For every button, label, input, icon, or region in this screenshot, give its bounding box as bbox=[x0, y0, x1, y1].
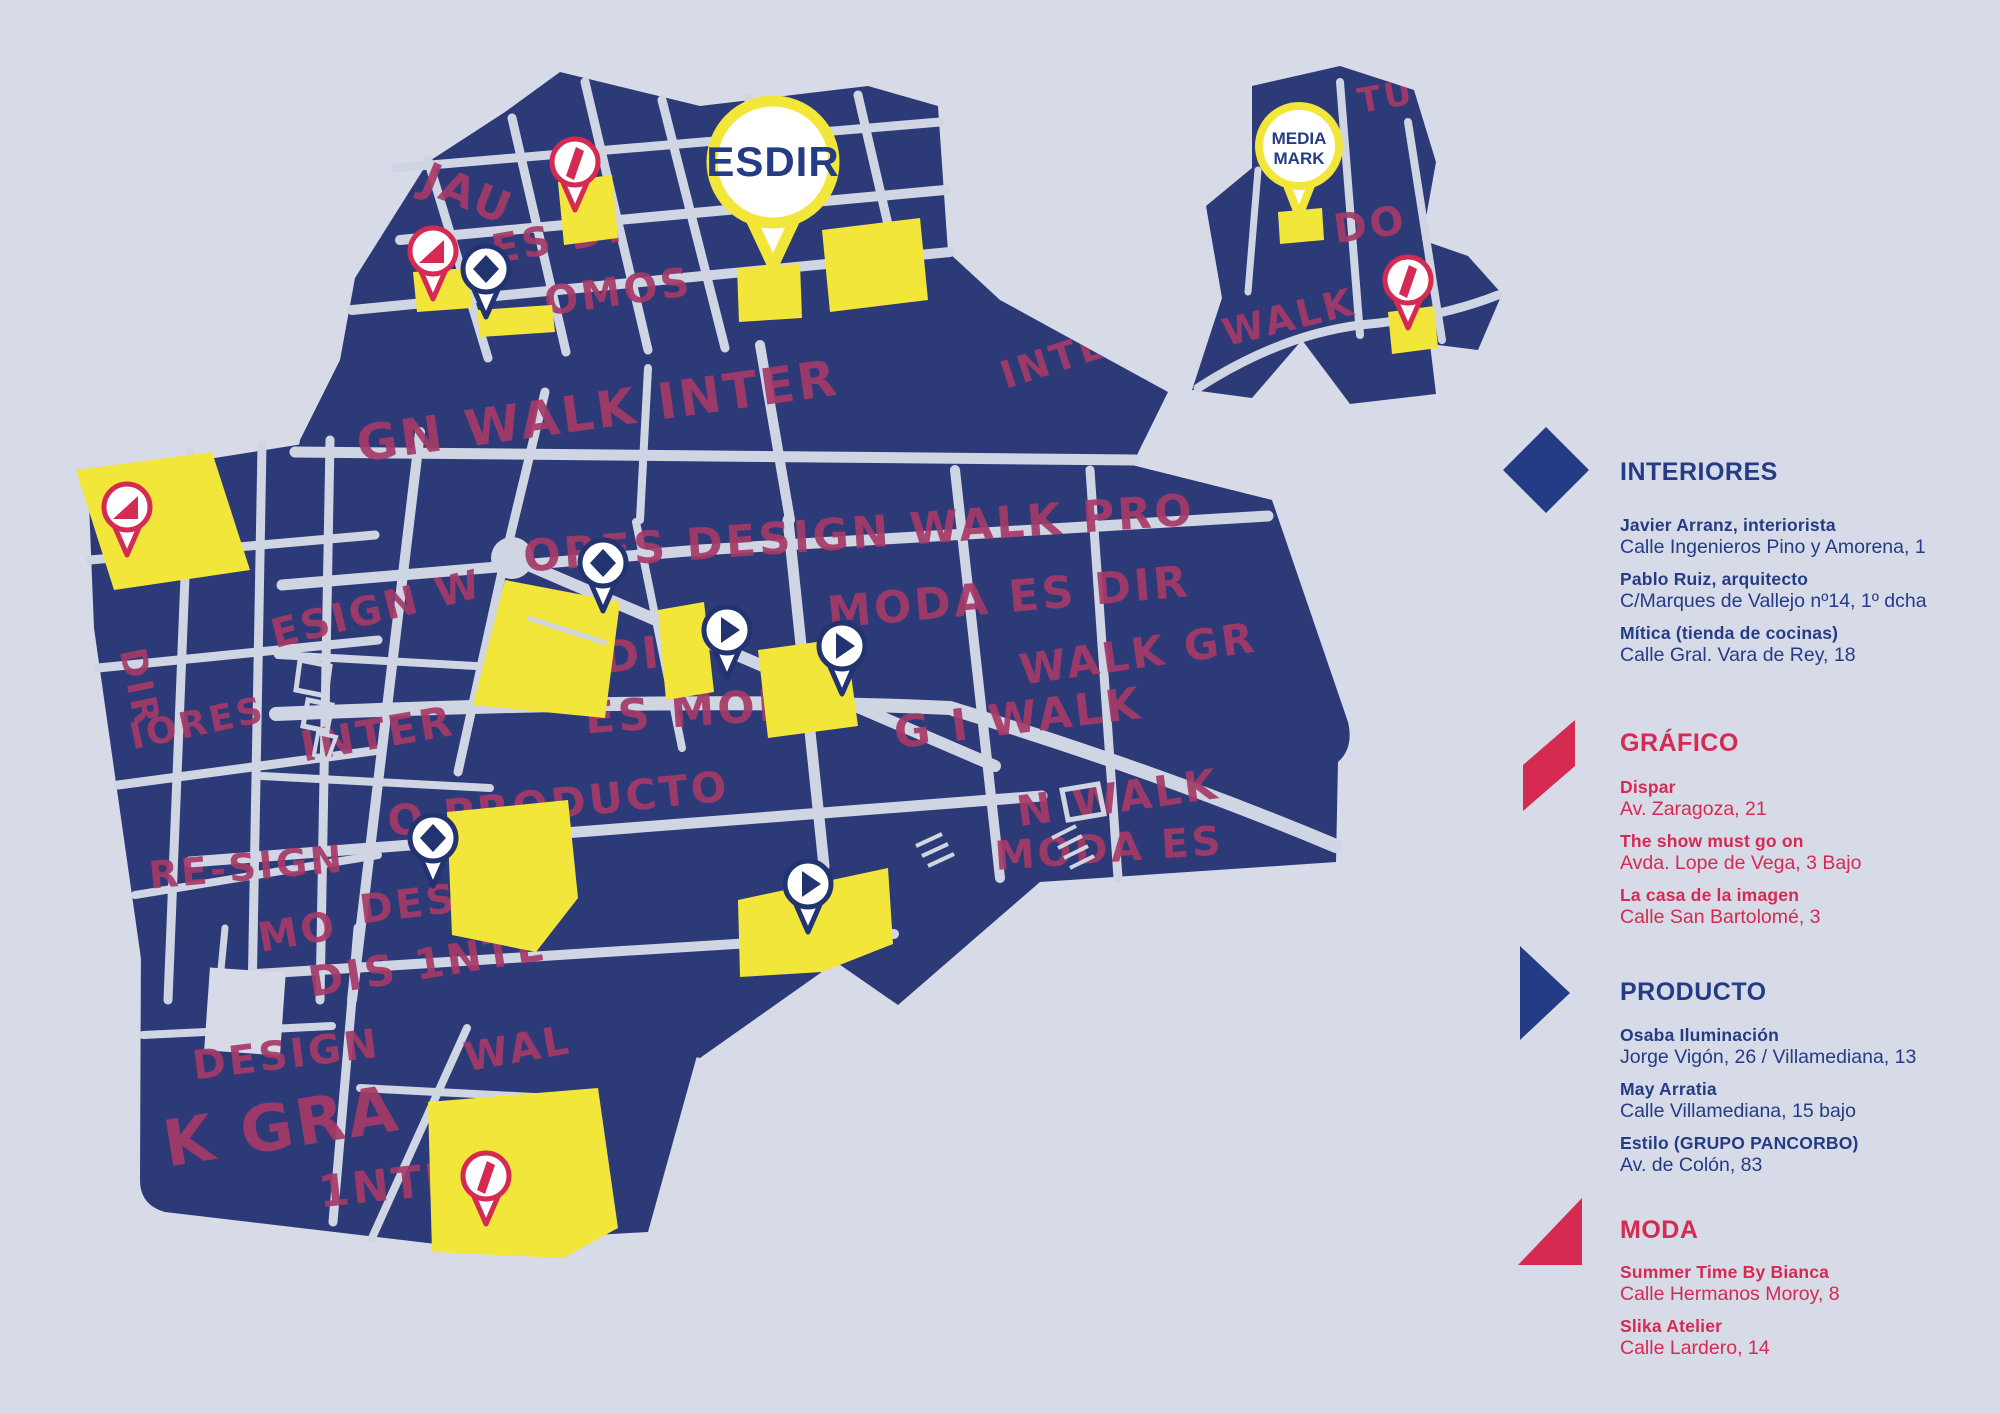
legend-entry: Dispar Av. Zaragoza, 21 bbox=[1620, 777, 1861, 821]
highlight-block bbox=[737, 264, 802, 322]
legend-title-grafico: GRÁFICO bbox=[1620, 729, 1739, 758]
legend-title-moda: MODA bbox=[1620, 1216, 1698, 1245]
corner-triangle-icon bbox=[1518, 1198, 1582, 1270]
media-pin-label: MARK bbox=[1274, 149, 1326, 168]
legend-title-producto: PRODUCTO bbox=[1620, 978, 1767, 1007]
play-triangle-icon bbox=[1520, 946, 1570, 1045]
legend-entry: Summer Time By Bianca Calle Hermanos Mor… bbox=[1620, 1262, 1840, 1306]
media-pin-label: MEDIA bbox=[1272, 129, 1327, 148]
legend-entry: La casa de la imagen Calle San Bartolomé… bbox=[1620, 885, 1861, 929]
city-map: ERICJAUES DIOMOSTUES IDOWALKGN WALK INTE… bbox=[0, 0, 2000, 1414]
esdir-pin-label: ESDIR bbox=[706, 138, 839, 185]
legend-entry: Javier Arranz, interiorista Calle Ingeni… bbox=[1620, 515, 1927, 559]
highlight-block bbox=[822, 218, 928, 312]
legend-title-interiores: INTERIORES bbox=[1620, 458, 1778, 487]
legend-entry: Pablo Ruiz, arquitecto C/Marques de Vall… bbox=[1620, 569, 1927, 613]
legend-entry: The show must go on Avda. Lope de Vega, … bbox=[1620, 831, 1861, 875]
legend-entry: Osaba Iluminación Jorge Vigón, 26 / Vill… bbox=[1620, 1025, 1916, 1069]
legend-entry: Slika Atelier Calle Lardero, 14 bbox=[1620, 1316, 1840, 1360]
parallelogram-icon bbox=[1523, 720, 1575, 819]
highlight-block bbox=[428, 1088, 618, 1258]
diamond-icon bbox=[1503, 427, 1589, 518]
legend-entry: Estilo (GRUPO PANCORBO) Av. de Colón, 83 bbox=[1620, 1133, 1916, 1177]
legend-entry: Mítica (tienda de cocinas) Calle Gral. V… bbox=[1620, 623, 1927, 667]
design-walk-map-page: ERICJAUES DIOMOSTUES IDOWALKGN WALK INTE… bbox=[0, 0, 2000, 1414]
graffiti-word: ES I bbox=[1427, 127, 1498, 224]
legend-entry: May Arratia Calle Villamediana, 15 bajo bbox=[1620, 1079, 1916, 1123]
